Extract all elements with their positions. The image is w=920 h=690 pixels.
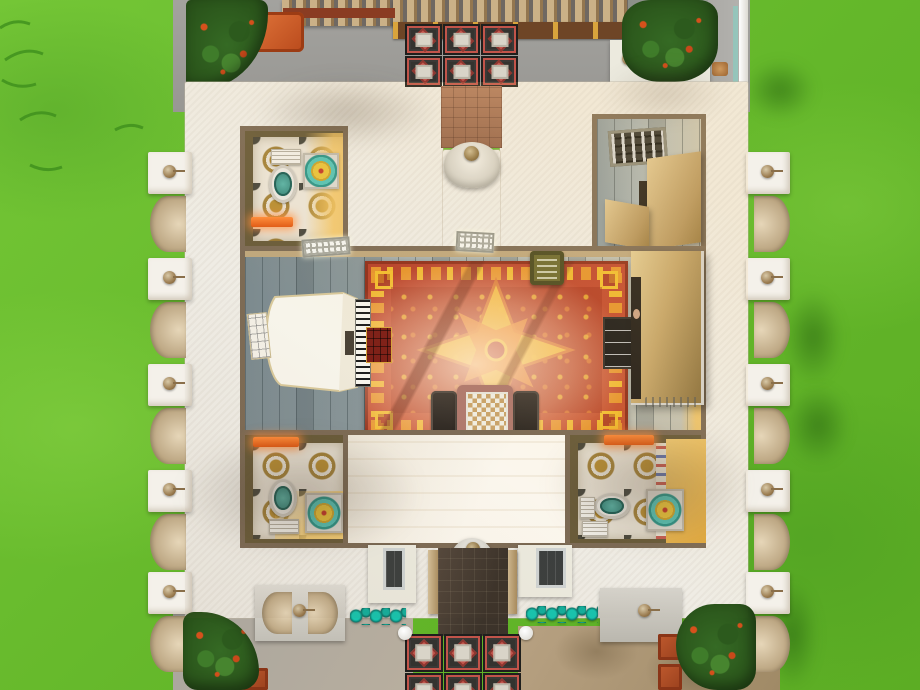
toilet-water: [274, 172, 292, 196]
pilaster-statue: [163, 483, 176, 496]
toilet-cistern: [271, 149, 301, 165]
wall-niche: [754, 302, 790, 358]
ornate-walkway-tile: [481, 56, 518, 87]
flowering-bush-bottom-right[interactable]: [676, 604, 756, 690]
tile-diamond-inner: [415, 644, 432, 661]
ornate-walkway-tile: [481, 24, 518, 55]
shower[interactable]: [303, 153, 339, 189]
ornate-walkway-tile: [405, 634, 443, 672]
path-post: [519, 626, 533, 640]
game-viewport[interactable]: [0, 0, 920, 690]
sleeping-sim: [633, 309, 640, 319]
tile-diamond-inner: [453, 32, 470, 46]
tile-diamond-inner: [415, 32, 432, 46]
ornate-walkway-tile: [405, 673, 443, 690]
column-niche: [262, 592, 292, 634]
pergola-slats-center: [393, 0, 645, 24]
ornate-walkway-tile: [443, 56, 480, 87]
bed-gap: [631, 277, 641, 399]
wall-niche: [754, 196, 790, 252]
typewriter-table[interactable]: [530, 251, 564, 285]
wardrobe-door-panel[interactable]: [647, 151, 701, 250]
bookshelf[interactable]: [605, 319, 631, 367]
wall-niche: [754, 616, 790, 672]
closet-top-right: [592, 114, 706, 251]
toilet[interactable]: [269, 165, 297, 203]
ceiling-light[interactable]: [301, 236, 350, 257]
ornate-walkway-tile: [443, 24, 480, 55]
tile-diamond-inner: [491, 64, 508, 78]
pilaster-statue: [163, 377, 176, 390]
tree-shadow: [600, 62, 730, 124]
tile-diamond-inner: [493, 683, 510, 690]
grass-shadow: [786, 385, 850, 465]
pilaster-statue: [761, 165, 774, 178]
chair[interactable]: [513, 391, 539, 435]
building-shadow: [176, 428, 426, 560]
wall-niche: [754, 514, 790, 570]
ornate-walkway-tile: [483, 673, 521, 690]
pilaster-statue: [163, 271, 176, 284]
column-niche: [308, 592, 338, 634]
tile-diamond-inner: [454, 644, 471, 661]
brick-path-entry: [441, 86, 502, 148]
wall-niche: [150, 616, 186, 672]
building-shadow: [545, 415, 755, 555]
bed-rail: [645, 397, 701, 407]
pilaster-statue: [163, 585, 176, 598]
teal-flowerbed-left[interactable]: [350, 608, 406, 625]
pilaster-statue: [638, 604, 651, 617]
ornate-walkway-tile: [405, 24, 442, 55]
pilaster-statue: [761, 271, 774, 284]
tile-diamond-inner: [415, 683, 432, 690]
glass-fence-panel: [733, 6, 738, 88]
ornate-walkway-tile: [444, 673, 482, 690]
piano-music-desk: [345, 331, 354, 355]
grass-shadow: [784, 290, 842, 385]
typewriter-keys: [537, 257, 557, 279]
fountain-ornament-top: [464, 146, 479, 161]
wall-niche: [754, 408, 790, 464]
pilaster-statue: [761, 585, 774, 598]
terracotta-planter[interactable]: [658, 664, 682, 690]
ottoman[interactable]: [366, 327, 392, 363]
path-post: [398, 626, 412, 640]
tile-diamond-inner: [453, 64, 470, 78]
tile-diamond-inner: [454, 683, 471, 690]
tree-shadow: [252, 76, 442, 148]
teal-flowerbed-right[interactable]: [526, 606, 598, 623]
sunlit-wall: [305, 133, 343, 245]
pilaster-statue: [761, 483, 774, 496]
ornate-walkway-tile: [444, 634, 482, 672]
pilaster-statue: [293, 604, 306, 617]
towel-rack[interactable]: [251, 217, 293, 227]
pilaster-statue: [163, 165, 176, 178]
wall-niche: [150, 302, 186, 358]
dark-exit-path: [438, 548, 508, 636]
murphy-bed[interactable]: [631, 251, 704, 405]
wall-niche: [150, 196, 186, 252]
tile-diamond-inner: [493, 644, 510, 661]
tile-diamond-inner: [491, 32, 508, 46]
pilaster-statue: [761, 377, 774, 390]
ornate-walkway-tile: [483, 634, 521, 672]
wardrobe-door-panel[interactable]: [605, 199, 649, 250]
ceiling-light[interactable]: [456, 231, 495, 253]
chair[interactable]: [431, 391, 457, 435]
grass-shadow: [745, 60, 815, 120]
